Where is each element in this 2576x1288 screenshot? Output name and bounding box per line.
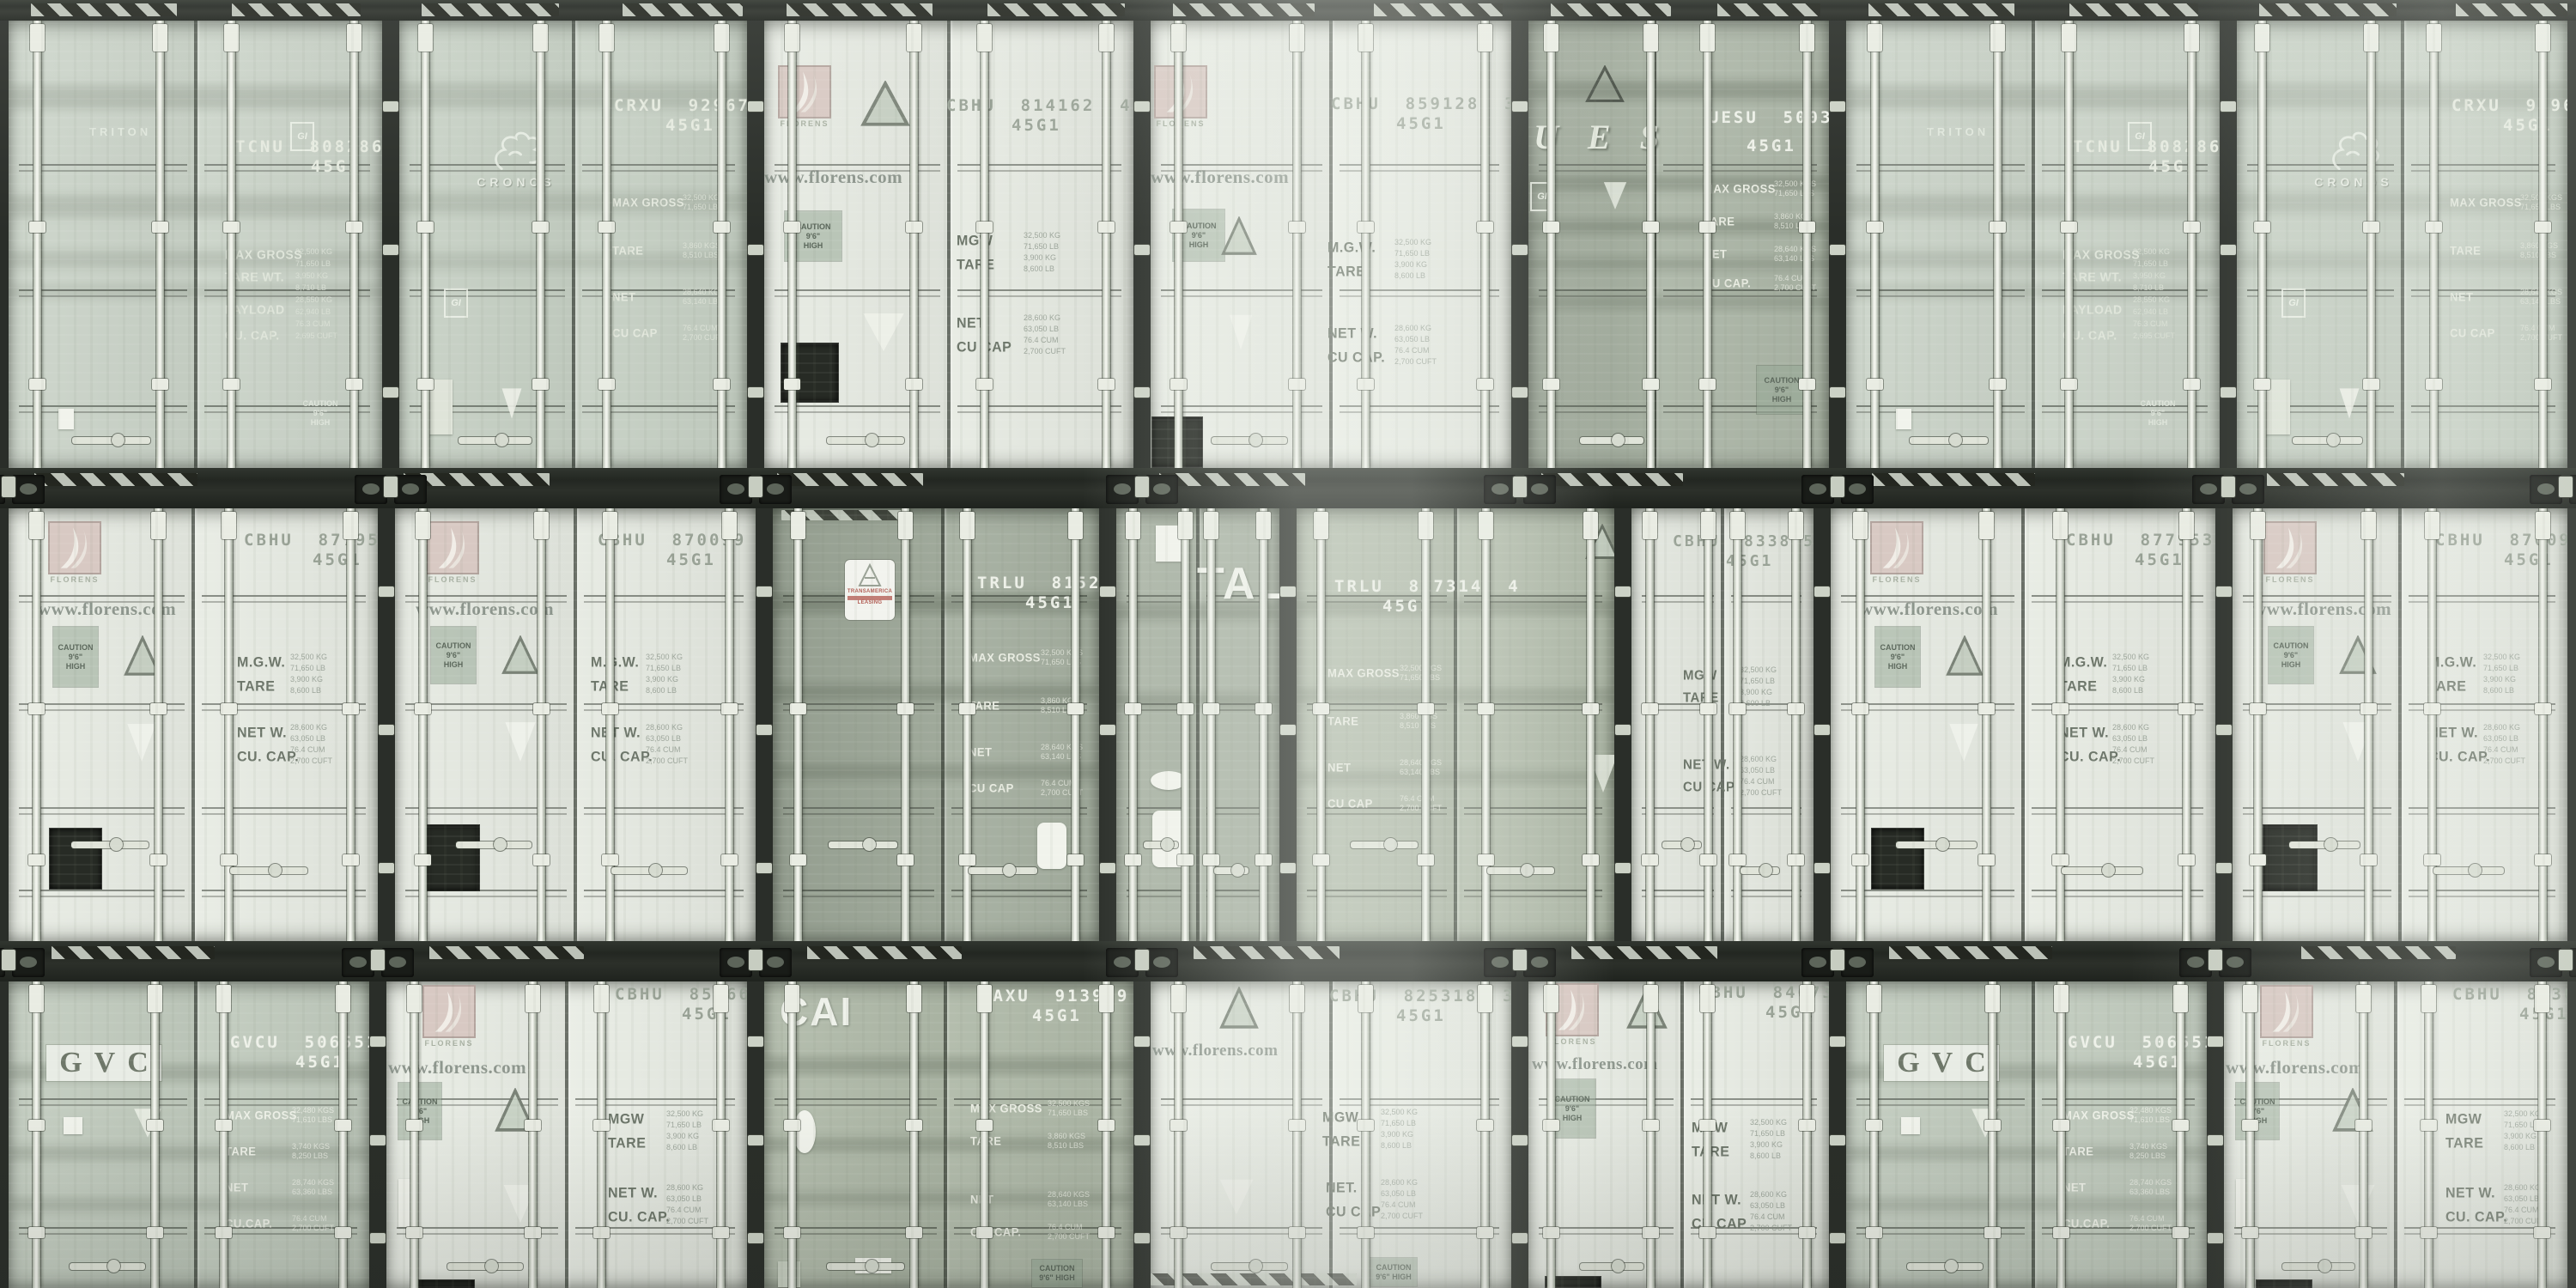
florens-logo: FLORENS — [778, 65, 831, 128]
marking-label: CU CAP — [1327, 797, 1373, 811]
rod-hinge-plate — [1358, 24, 1373, 52]
marking-label: MAX GROSS — [2063, 247, 2140, 262]
rod-hinge-plate — [1867, 985, 1881, 1012]
twist-lock — [384, 477, 398, 497]
marking-values: 28,600 KG 63,050 LB 76.4 CUM 2,700 CUFT — [1024, 313, 1066, 357]
gap-hinge-tab — [1830, 101, 1845, 112]
door-lock-rod — [2360, 981, 2367, 1288]
door-lock-rod — [2177, 981, 2184, 1288]
rod-bracket — [976, 379, 993, 390]
rod-bracket — [897, 854, 914, 866]
container-type-code: 45G1 — [313, 550, 362, 569]
door-lock-rod — [2428, 508, 2436, 941]
door-lock-rod — [2425, 981, 2433, 1288]
caution-line: HIGH — [1189, 240, 1209, 250]
corner-casting — [1484, 948, 1516, 977]
container-id-text: TRLU 815241 3 — [977, 574, 1099, 592]
rod-bracket — [1699, 222, 1716, 233]
door-lock-rod — [538, 508, 545, 941]
marking-label: MAX GROSS — [969, 651, 1041, 665]
door-handle-hub — [2102, 864, 2115, 877]
shipping-container-trlu815241: TRANSAMERICALEASINGTRLU 815241 345G1MAX … — [773, 508, 1099, 941]
marking-values: 3,860 KGS 8,510 LBS — [683, 241, 720, 260]
rod-bracket — [959, 854, 975, 866]
rod-bracket — [223, 222, 240, 233]
rod-bracket — [1978, 854, 1995, 866]
rod-bracket — [1788, 854, 1804, 866]
rod-bracket — [906, 1120, 922, 1131]
door-handle-hub — [494, 838, 507, 851]
gap-hinge-tab — [1814, 725, 1830, 735]
rod-bracket — [976, 222, 993, 233]
door-lock-rod — [788, 21, 796, 468]
marking-values: 28,740 KGS 63,360 LBS — [292, 1178, 334, 1197]
container-type-code: 45G1 — [2135, 550, 2184, 569]
container-type-code: 45G1 — [666, 550, 716, 569]
caution-height-sticker: CAUTION9'6"HIGH — [2269, 627, 2313, 683]
marking-values: 28,600 KG 63,050 LB 76.4 CUM 2,700 CUFT — [666, 1182, 708, 1227]
rod-bracket — [1098, 1227, 1115, 1238]
marking-values: 32,500 KG 71,650 LB 3,900 KG 8,600 LB — [2483, 652, 2520, 696]
corner-casting — [1145, 475, 1178, 504]
door-lock-rod — [2183, 508, 2190, 941]
door-seam-line — [951, 896, 1087, 897]
corner-casting — [1106, 475, 1139, 504]
rod-hinge-plate — [222, 512, 236, 539]
rod-bracket — [417, 379, 434, 390]
weathering-streak — [1846, 85, 2220, 109]
rod-hinge-plate — [2255, 24, 2269, 52]
rod-hinge-plate — [599, 24, 614, 52]
caution-line: CAUTION — [1880, 643, 1916, 653]
height-warning-triangle-dn — [1228, 313, 1254, 352]
marking-label: NET — [225, 1181, 249, 1194]
gap-hinge-tab — [379, 586, 394, 597]
weathering-streak — [1528, 295, 1829, 309]
caution-line: CAUTION — [2141, 399, 2176, 409]
marking-label: MAX GROSS — [1327, 666, 1400, 680]
shipping-container-cbhu853661: FLORENSwww.florens.comCAUTION9'6"HIGHCBH… — [386, 981, 747, 1288]
caution-line: 9'6" — [313, 409, 327, 418]
caution-line: CAUTION — [1040, 1264, 1075, 1273]
marking-values: 28,600 KG 63,050 LB 76.4 CUM 2,700 CUFT — [290, 722, 332, 767]
door-handle-hub — [1681, 838, 1694, 851]
door-lock-rod — [1103, 981, 1110, 1288]
marking-label: CU. CAP. — [591, 750, 653, 766]
shipping-container-gvcu: GVCGVCU 506551 345G1MAX GROSS32,480 KGS … — [9, 981, 369, 1288]
marking-values: 32,500 KG 71,650 LB 3,900 KG 8,600 LB — [666, 1109, 703, 1153]
marking-label: CU. CAP. — [2428, 750, 2490, 766]
door-seam-line — [783, 896, 934, 897]
rod-bracket — [1699, 1227, 1716, 1238]
rod-hinge-plate — [1478, 985, 1492, 1012]
rod-bracket — [2534, 1120, 2550, 1131]
shipping-container-cbhu853661: FLORENSwww.florens.comCAUTION9'6"HIGHCBH… — [2224, 981, 2567, 1288]
container-id-text: GVCU 506551 3 — [230, 1033, 369, 1052]
rod-hinge-plate — [1478, 24, 1492, 52]
marking-values: 32,500 KGS 71,650 LBS — [1400, 664, 1442, 683]
rod-hinge-plate — [343, 512, 358, 539]
caution-line: 9'6" — [806, 232, 820, 241]
corner-casting — [720, 948, 752, 977]
door-seam-line — [1663, 295, 1817, 297]
rod-hinge-plate — [2062, 24, 2076, 52]
marking-values: 28,740 KGS 63,360 LBS — [2129, 1178, 2172, 1197]
rod-bracket — [343, 703, 359, 714]
badge-red-bar — [848, 596, 892, 600]
rod-bracket — [1699, 379, 1716, 390]
florens-swoosh-icon — [2260, 985, 2313, 1038]
stack-gap-band — [0, 941, 2576, 981]
door-seam-line — [1856, 1098, 2025, 1100]
door-lock-rod — [1175, 21, 1182, 468]
door-lock-rod — [1175, 981, 1182, 1288]
corner-casting — [381, 948, 414, 977]
height-warning-triangle-dn — [501, 386, 523, 421]
shipping-container-cbhu877953: FLORENSwww.florens.comCAUTION9'6"HIGHCBH… — [1831, 508, 2215, 941]
gvc-logo-text: GVC — [46, 1045, 161, 1082]
door-lock-rod — [910, 21, 918, 468]
rod-bracket — [221, 703, 237, 714]
rod-bracket — [1799, 379, 1815, 390]
door-lock-rod — [220, 981, 228, 1288]
rod-hinge-plate — [407, 985, 422, 1012]
door-lock-rod — [2188, 21, 2196, 468]
rod-bracket — [147, 1227, 163, 1238]
rod-bracket — [602, 703, 618, 714]
gap-hinge-tab — [370, 1036, 386, 1047]
rod-bracket — [28, 1120, 45, 1131]
marking-values: 32,500 KG 71,650 LB 3,900 KG 8,600 LB — [1740, 665, 1777, 709]
caution-height-sticker: CAUTION9'6"HIGH — [398, 1083, 441, 1139]
door-lock-rod — [155, 508, 162, 941]
gap-hinge-tab — [1134, 387, 1150, 398]
container-id-text: GVCU 506551 3 — [2068, 1033, 2207, 1052]
rod-bracket — [150, 703, 167, 714]
corner-casting — [2530, 948, 2562, 977]
door-lock-rod — [902, 508, 909, 941]
rod-bracket — [1799, 1120, 1815, 1131]
rod-bracket — [346, 222, 362, 233]
door-lock-rod — [717, 981, 725, 1288]
marking-label: TARE — [1327, 714, 1358, 728]
weathering-streak — [764, 1057, 1133, 1074]
rod-bracket — [1098, 222, 1115, 233]
rod-bracket — [1125, 703, 1141, 714]
door-lock-rod — [1260, 508, 1267, 941]
door-lock-rod — [981, 981, 988, 1288]
marking-values: 76.4 CUM 2,700 CUFT — [2129, 1214, 2172, 1233]
door-handle-hub — [1936, 838, 1949, 851]
rod-bracket — [417, 222, 434, 233]
twist-lock — [2559, 950, 2573, 970]
door-lock-rod — [1481, 981, 1489, 1288]
rod-hinge-plate — [148, 985, 162, 1012]
rod-bracket — [2172, 1120, 2189, 1131]
rod-hinge-plate — [347, 24, 361, 52]
shipping-container-tal20: TAL — [1116, 508, 1279, 941]
door-lock-rod — [1317, 508, 1325, 941]
rod-bracket — [335, 1120, 351, 1131]
marking-values: 32,500 KG 71,650 LB 3,950 KG 8,710 LB 28… — [2133, 246, 2175, 342]
marking-values: 32,500 KG 71,650 LB 3,900 KG 8,600 LB — [1381, 1107, 1418, 1151]
marking-values: 32,480 KGS 71,610 LBS — [292, 1106, 334, 1125]
marking-label: CU. CAP. — [608, 1210, 670, 1226]
cronos-caption: CRONOS — [475, 175, 557, 189]
marking-label: MAX GROSS — [2450, 196, 2522, 210]
rod-hinge-plate — [1479, 512, 1493, 539]
twist-lock — [2, 477, 15, 497]
twist-lock — [1513, 950, 1527, 970]
marking-values: 32,500 KG 71,650 LB 3,900 KG 8,600 LB — [290, 652, 327, 696]
rod-hinge-plate — [2053, 512, 2068, 539]
door-lock-rod — [225, 508, 233, 941]
weathering-streak — [9, 195, 382, 217]
rod-bracket — [1358, 1120, 1374, 1131]
rod-bracket — [714, 222, 730, 233]
rod-bracket — [1098, 379, 1115, 390]
hazard-stripe — [2259, 3, 2397, 16]
corner-casting — [1841, 475, 1874, 504]
rod-bracket — [2178, 703, 2195, 714]
rod-bracket — [1867, 379, 1883, 390]
door-handle-hub — [1384, 838, 1397, 851]
hazard-stripe — [34, 473, 197, 486]
rod-bracket — [1358, 1227, 1374, 1238]
caution-height-sticker: CAUTION9'6"HIGH — [1875, 627, 1920, 687]
marking-label: TARE — [1327, 264, 1365, 281]
rod-hinge-plate — [714, 985, 728, 1012]
corner-casting — [12, 475, 45, 504]
door-handle-hub — [863, 838, 876, 851]
marking-values: 28,600 KG 63,050 LB 76.4 CUM 2,700 CUFT — [1381, 1177, 1423, 1222]
rod-hinge-plate — [1990, 24, 2005, 52]
hazard-stripe — [623, 3, 743, 16]
door-seam-line — [19, 1098, 187, 1100]
rod-bracket — [2421, 1120, 2437, 1131]
door-lock-rod — [788, 981, 796, 1288]
rod-bracket — [976, 1120, 993, 1131]
marking-label: CU. CAP. — [2445, 1210, 2507, 1226]
rod-bracket — [2184, 379, 2200, 390]
shipping-container-cbhu833885: CBHU 833885 045G1MGWTARE32,500 KG 71,650… — [1631, 508, 1814, 941]
hazard-stripe — [422, 3, 559, 16]
door-lock-rod — [1293, 981, 1301, 1288]
rod-bracket — [1098, 1120, 1115, 1131]
caution-height-sticker: CAUTION9'6"HIGH — [431, 627, 476, 683]
rod-bracket — [2053, 1227, 2069, 1238]
door-lock-rod — [1704, 21, 1711, 468]
florens-swoosh-icon — [426, 521, 479, 574]
caution-height-sticker: CAUTION9'6"HIGH — [2236, 1083, 2279, 1139]
caution-line: 9'6" — [1192, 231, 1206, 240]
door-gap-line — [565, 981, 568, 1288]
marking-label: NET — [2450, 290, 2474, 304]
door-lock-rod — [1734, 508, 1741, 941]
corner-casting — [12, 948, 45, 977]
gap-hinge-tab — [1615, 863, 1631, 873]
rod-bracket — [2052, 854, 2069, 866]
hazard-stripe — [1541, 473, 1683, 486]
caution-line: 9'6" — [1775, 386, 1789, 395]
marking-label: NET W. — [1692, 1193, 1741, 1209]
hazard-stripe — [1717, 3, 1820, 16]
door-lock-rod — [1547, 981, 1555, 1288]
hazard-stripe — [1868, 3, 2014, 16]
gap-hinge-tab — [370, 1233, 386, 1243]
florens-swoosh-icon — [2263, 521, 2317, 574]
gap-hinge-tab — [1134, 1233, 1150, 1243]
caution-line: HIGH — [311, 418, 331, 428]
container-stack-photo: TRITONGITCNU 808286 645G1MAX GROSSTARE W… — [0, 0, 2576, 1288]
door-lock-rod — [794, 508, 802, 941]
door-lock-rod — [1481, 21, 1489, 468]
rod-hinge-plate — [1800, 985, 1814, 1012]
rod-bracket — [343, 854, 359, 866]
rod-bracket — [2061, 222, 2077, 233]
florens-caption: FLORENS — [48, 575, 101, 584]
hazard-stripe — [807, 946, 962, 959]
gap-hinge-tab — [2208, 1036, 2223, 1047]
rod-hinge-plate — [2427, 24, 2441, 52]
rod-bracket — [1477, 222, 1493, 233]
twist-lock — [749, 950, 762, 970]
twist-lock — [749, 477, 762, 497]
rod-bracket — [2355, 1120, 2372, 1131]
rod-bracket — [28, 703, 45, 714]
rod-hinge-plate — [960, 512, 975, 539]
rod-hinge-plate — [2251, 512, 2265, 539]
door-seam-line — [783, 807, 934, 809]
rod-bracket — [2242, 1227, 2258, 1238]
caution-line: HIGH — [2148, 418, 2168, 428]
florens-swoosh-icon — [1870, 521, 1923, 574]
door-handle-hub — [866, 434, 878, 447]
door-handle-hub — [649, 864, 662, 877]
rod-bracket — [2535, 854, 2551, 866]
rod-hinge-plate — [1314, 512, 1328, 539]
rod-bracket — [415, 854, 431, 866]
twist-lock — [2559, 477, 2573, 497]
rod-bracket — [1477, 1227, 1493, 1238]
door-lock-rod — [981, 21, 988, 468]
rod-bracket — [1978, 703, 1995, 714]
rod-hinge-plate — [1700, 985, 1715, 1012]
gap-hinge-tab — [2208, 1135, 2223, 1145]
height-warning-triangle-dn — [1602, 180, 1628, 211]
door-lock-rod — [1207, 508, 1215, 941]
caution-line: HIGH — [66, 662, 86, 671]
rod-hinge-plate — [2054, 985, 2069, 1012]
gap-hinge-tab — [1100, 586, 1115, 597]
door-lock-rod — [151, 981, 159, 1288]
weathering-streak — [9, 85, 382, 109]
caution-height-sticker: CAUTION9'6"HIGH — [1757, 366, 1807, 414]
marking-values: 32,500 KG 71,650 LB 3,900 KG 8,600 LB — [646, 652, 683, 696]
marking-label: CU CAP. — [1327, 350, 1385, 367]
hazard-stripe — [2456, 3, 2567, 16]
marking-label: NET W. — [1327, 326, 1377, 343]
caution-height-sticker: CAUTION9'6"HIGH — [53, 627, 98, 687]
weathering-streak — [1297, 689, 1614, 702]
rod-hinge-plate — [1789, 512, 1803, 539]
shipping-container-tcnu: TRITONGITCNU 808286 645G1MAX GROSSTARE W… — [1846, 21, 2220, 468]
door-seam-line — [1731, 813, 1801, 815]
rod-bracket — [2184, 222, 2200, 233]
rod-hinge-plate — [153, 24, 167, 52]
gap-hinge-tab — [1615, 725, 1631, 735]
door-handle-hub — [1521, 864, 1534, 877]
rod-bracket — [1984, 1227, 2001, 1238]
container-type-code: 45G1 — [1396, 114, 1446, 133]
weathering-streak — [773, 764, 1099, 780]
marking-label: NET W. — [237, 726, 287, 742]
weathering-streak — [1846, 1198, 2207, 1212]
rod-bracket — [1289, 379, 1305, 390]
marking-values: 76.4 CUM 2,700 CUFT — [292, 1214, 334, 1233]
stack-gap-band — [0, 468, 2576, 508]
door-lock-rod — [422, 21, 429, 468]
rod-hinge-plate — [1583, 512, 1598, 539]
rod-hinge-plate — [2356, 985, 2371, 1012]
marking-label: TARE — [2445, 1136, 2483, 1152]
rod-bracket — [533, 703, 550, 714]
container-id-text: CRXU 929678 2 — [2451, 96, 2567, 115]
hazard-stripe — [787, 3, 933, 16]
door-gap-line — [2398, 508, 2402, 941]
caution-line: 9'6" HIGH — [1039, 1273, 1074, 1283]
hazard-stripe — [1872, 473, 2035, 486]
marking-values: 3,740 KGS 8,250 LBS — [2129, 1142, 2167, 1161]
rod-bracket — [221, 854, 237, 866]
marking-label: MAX GROSS — [225, 247, 302, 262]
door-lock-rod — [1871, 21, 1879, 468]
cronos-seahorse-icon — [475, 131, 557, 175]
door-lock-rod — [1129, 508, 1137, 941]
caution-line: HIGH — [804, 241, 823, 251]
gap-hinge-tab — [1280, 863, 1296, 873]
hazard-stripe — [2267, 473, 2404, 486]
door-lock-rod — [33, 508, 40, 941]
rod-hinge-plate — [594, 985, 609, 1012]
rod-hinge-plate — [2425, 512, 2439, 539]
door-handle-hub — [1612, 1260, 1625, 1273]
gap-hinge-tab — [1100, 863, 1115, 873]
door-lock-rod — [1362, 21, 1370, 468]
gap-hinge-tab — [2208, 1233, 2223, 1243]
corner-casting — [394, 475, 427, 504]
door-seam-line — [783, 813, 934, 815]
rod-hinge-plate — [533, 24, 548, 52]
door-lock-rod — [598, 981, 605, 1288]
gap-hinge-tab — [2216, 725, 2232, 735]
weathering-streak — [9, 1198, 369, 1212]
paint-patch — [1901, 1117, 1920, 1134]
gap-hinge-tab — [1512, 101, 1528, 112]
marking-values: 76.4 CUM 2,700 CUFT — [1048, 1223, 1090, 1242]
rod-bracket — [959, 703, 975, 714]
rod-bracket — [1478, 703, 1494, 714]
door-seam-line — [783, 890, 934, 891]
door-seam-line — [19, 1104, 187, 1106]
door-gap-line — [1721, 508, 1724, 941]
transamerica-leasing-badge: TRANSAMERICALEASING — [845, 560, 895, 620]
door-seam-line — [1663, 164, 1817, 166]
paint-patch — [793, 1110, 816, 1153]
container-id-text: UESU 500383 0 — [1709, 108, 1829, 127]
door-seam-line — [1206, 807, 1267, 809]
rod-bracket — [602, 854, 618, 866]
